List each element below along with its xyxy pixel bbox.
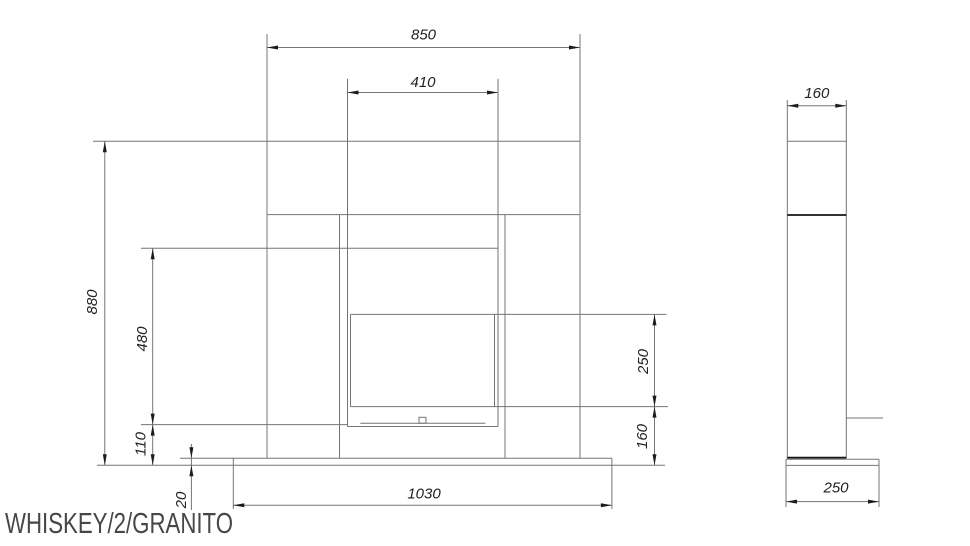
svg-text:160: 160: [634, 423, 651, 449]
svg-text:880: 880: [84, 289, 101, 315]
svg-text:250: 250: [635, 348, 652, 375]
svg-text:110: 110: [133, 431, 150, 456]
svg-text:1030: 1030: [407, 485, 441, 502]
svg-text:480: 480: [134, 326, 151, 352]
svg-text:850: 850: [411, 27, 437, 44]
svg-text:250: 250: [822, 479, 849, 496]
svg-text:20: 20: [173, 491, 190, 509]
svg-text:WHISKEY/2/GRANITO: WHISKEY/2/GRANITO: [5, 508, 233, 540]
svg-text:410: 410: [410, 74, 436, 91]
svg-text:160: 160: [804, 85, 830, 102]
